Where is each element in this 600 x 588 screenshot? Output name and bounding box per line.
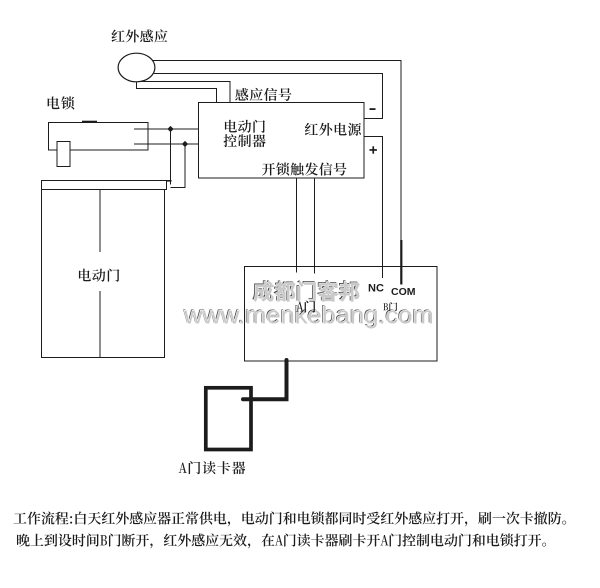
svg-text:COM: COM [391, 286, 416, 298]
svg-text:NC: NC [368, 283, 384, 295]
